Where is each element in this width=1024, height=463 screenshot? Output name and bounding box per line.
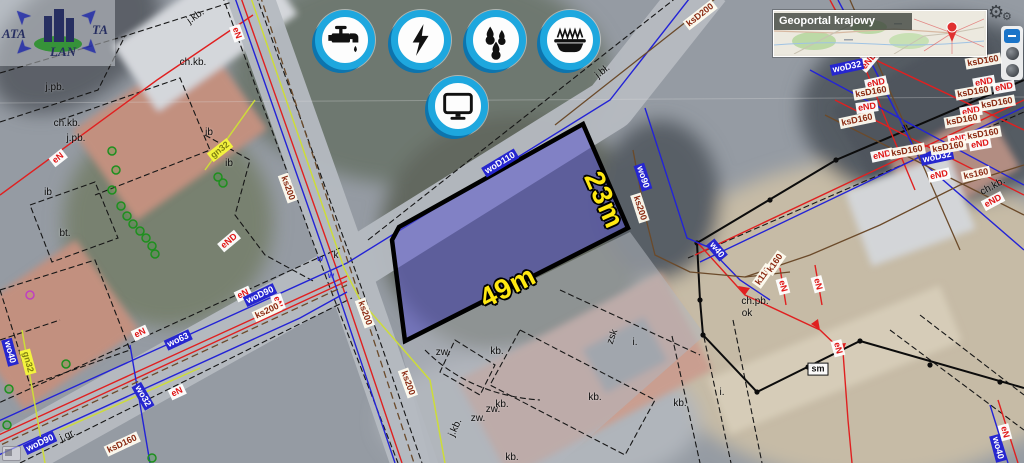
corner-map-button[interactable] [2, 446, 21, 461]
water-drops-glyph [476, 20, 516, 60]
gas-basin-glyph [550, 20, 590, 60]
corner-button-icon [5, 449, 12, 456]
logo-building-icon [66, 18, 74, 42]
logo-building-icon [44, 16, 52, 42]
gas-basin-icon[interactable] [540, 10, 600, 70]
gear-small-icon: ⚙ [1002, 10, 1012, 23]
round-control-button-2[interactable] [1006, 64, 1019, 77]
logo-text-bottom: LAN [50, 44, 76, 60]
logo-arrow-icon: ➤ [77, 35, 103, 61]
water-tap-icon[interactable] [315, 10, 375, 70]
minimap-title: Geoportal krajowy [774, 13, 912, 30]
lightning-glyph [401, 20, 441, 60]
geoportal-map-stage[interactable]: j.pb.ch.kb.j.pb.ibbt.ibibj.kb.ch.kb.j.bł… [0, 0, 1024, 463]
logo-text-right: TA [92, 22, 108, 38]
aerial-map-canvas[interactable] [0, 0, 1024, 463]
minimap-overview[interactable]: Geoportal krajowy [773, 10, 987, 57]
lightning-icon[interactable] [391, 10, 451, 70]
round-control-button-1[interactable] [1006, 47, 1019, 60]
monitor-glyph [438, 86, 478, 126]
water-drops-icon[interactable] [466, 10, 526, 70]
water-tap-glyph [325, 20, 365, 60]
settings-button[interactable]: ⚙ ⚙ [988, 2, 1018, 26]
logo-building-icon [54, 9, 64, 42]
collapse-panel-button[interactable] [1004, 29, 1020, 43]
map-control-strip [1001, 26, 1023, 80]
monitor-icon[interactable] [428, 76, 488, 136]
minus-icon [1008, 35, 1016, 37]
logo-text-left: ATA [2, 26, 26, 42]
logo-watermark: ➤ ➤ ➤ ➤ ATA TA LAN [0, 0, 115, 66]
